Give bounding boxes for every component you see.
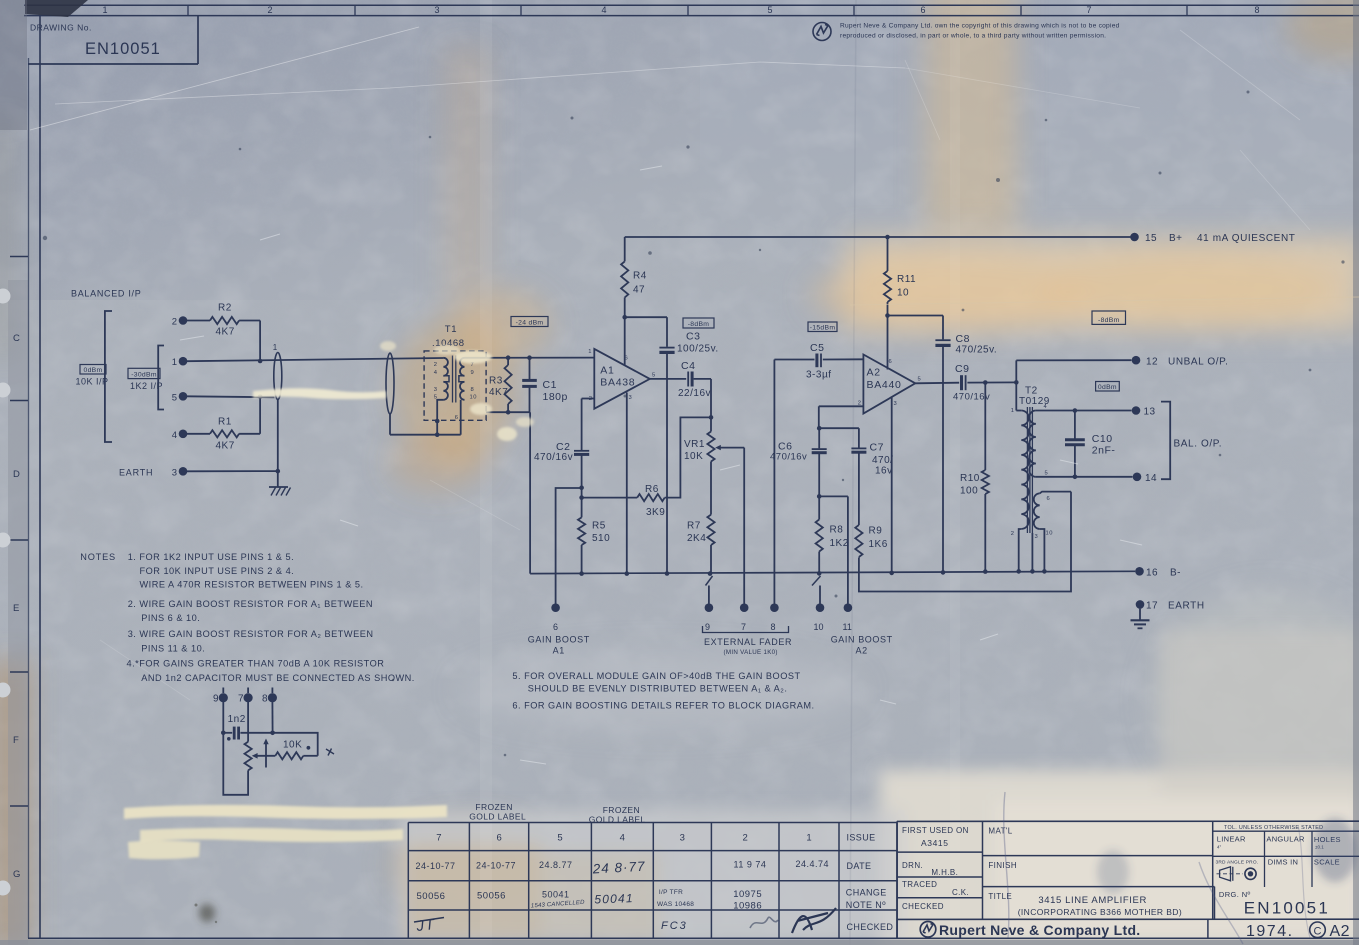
svg-text:(INCORPORATING B366 MOTHER: (INCORPORATING B366 MOTHER BD) xyxy=(1018,907,1182,917)
svg-text:1n2: 1n2 xyxy=(228,714,246,725)
svg-text:470/: 470/ xyxy=(872,455,893,466)
svg-text:50041: 50041 xyxy=(594,891,634,906)
svg-text:CHECKED: CHECKED xyxy=(847,922,894,932)
svg-text:0dBm: 0dBm xyxy=(84,367,103,374)
svg-text:EARTH: EARTH xyxy=(1168,601,1205,612)
svg-text:R10: R10 xyxy=(960,473,980,484)
svg-text:Rupert Neve & Company Ltd. own: Rupert Neve & Company Ltd. own the copyr… xyxy=(840,23,1120,30)
svg-text:50056: 50056 xyxy=(417,891,446,902)
svg-text:1. FOR 1K2 INPUT USE PINS 1 &: 1. FOR 1K2 INPUT USE PINS 1 & 5. xyxy=(128,552,294,562)
svg-text:8: 8 xyxy=(771,622,776,632)
svg-text:FINISH: FINISH xyxy=(988,861,1017,870)
svg-text:T2: T2 xyxy=(1025,386,1038,397)
svg-text:24.4.74: 24.4.74 xyxy=(796,859,830,869)
svg-text:R6: R6 xyxy=(645,484,659,495)
svg-text:8: 8 xyxy=(1254,5,1259,15)
svg-text:470/16v: 470/16v xyxy=(534,452,573,463)
svg-text:A1: A1 xyxy=(600,365,614,377)
svg-text:510: 510 xyxy=(592,533,610,544)
svg-text:-8dBm: -8dBm xyxy=(688,321,710,328)
svg-text:10K: 10K xyxy=(684,451,703,462)
svg-text:6: 6 xyxy=(496,833,501,844)
svg-text:7: 7 xyxy=(436,833,441,844)
svg-text:DIMS IN: DIMS IN xyxy=(1268,858,1298,867)
svg-text:2. WIRE GAIN BOOST RESISTOR FO: 2. WIRE GAIN BOOST RESISTOR FOR A₁ BETWE… xyxy=(128,599,373,609)
svg-text:GOLD LABEL: GOLD LABEL xyxy=(469,812,526,822)
svg-text:6: 6 xyxy=(553,622,558,632)
svg-text:B+: B+ xyxy=(1169,233,1183,244)
svg-text:5: 5 xyxy=(557,833,562,844)
svg-text:3RD ANGLE PRO.: 3RD ANGLE PRO. xyxy=(1216,860,1259,866)
svg-text:BALANCED I/P: BALANCED I/P xyxy=(71,289,141,299)
svg-text:BA438: BA438 xyxy=(600,377,635,389)
svg-text:100: 100 xyxy=(960,486,978,497)
svg-text:F: F xyxy=(13,735,19,746)
svg-text:6: 6 xyxy=(920,5,925,15)
svg-text:10: 10 xyxy=(470,395,477,401)
svg-text:10986: 10986 xyxy=(733,900,762,911)
svg-text:FIRST USED ON: FIRST USED ON xyxy=(902,826,969,835)
svg-text:1K2: 1K2 xyxy=(830,538,849,549)
svg-text:1: 1 xyxy=(1011,408,1014,414)
svg-text:NOTE Nº: NOTE Nº xyxy=(846,900,886,910)
svg-text:GOLD LABEL: GOLD LABEL xyxy=(589,815,646,825)
svg-text:(MIN VALUE 1K0): (MIN VALUE 1K0) xyxy=(724,649,778,656)
svg-text:9: 9 xyxy=(471,370,475,376)
svg-text:9: 9 xyxy=(705,622,710,632)
svg-text:14: 14 xyxy=(1145,473,1157,484)
svg-text:FROZEN: FROZEN xyxy=(603,805,640,815)
svg-text:2: 2 xyxy=(1011,531,1014,537)
svg-text:7: 7 xyxy=(238,694,244,705)
svg-text:4K7: 4K7 xyxy=(216,441,235,452)
svg-text:470/25v.: 470/25v. xyxy=(956,345,998,356)
svg-text:R7: R7 xyxy=(687,521,701,532)
svg-text:2: 2 xyxy=(267,5,272,15)
svg-text:R5: R5 xyxy=(592,521,606,532)
svg-text:PINS 6 & 10.: PINS 6 & 10. xyxy=(141,613,200,623)
svg-text:C: C xyxy=(13,333,20,344)
svg-text:2: 2 xyxy=(743,833,748,844)
svg-text:-8dBm: -8dBm xyxy=(1098,317,1120,324)
svg-text:10K: 10K xyxy=(283,740,302,751)
svg-text:5: 5 xyxy=(918,377,922,383)
svg-text:R8: R8 xyxy=(830,525,844,536)
svg-text:10: 10 xyxy=(814,622,824,632)
svg-text:2nF-: 2nF- xyxy=(1092,445,1116,457)
svg-text:FROZEN: FROZEN xyxy=(475,802,512,812)
svg-text:DRAWING No.: DRAWING No. xyxy=(30,23,92,33)
svg-text:2: 2 xyxy=(172,317,177,328)
svg-text:C1: C1 xyxy=(543,379,557,391)
svg-text:6: 6 xyxy=(455,415,458,421)
svg-text:C3: C3 xyxy=(686,331,700,343)
svg-text:9: 9 xyxy=(213,694,219,705)
svg-text:24-10-77: 24-10-77 xyxy=(476,861,516,871)
svg-text:Rupert Neve & Company Ltd.: Rupert Neve & Company Ltd. xyxy=(939,922,1141,938)
svg-text:WAS 10468: WAS 10468 xyxy=(657,901,694,908)
svg-text:C10: C10 xyxy=(1092,433,1113,445)
svg-text:C9: C9 xyxy=(955,363,969,375)
svg-text:10K I/P: 10K I/P xyxy=(76,377,109,387)
svg-text:15: 15 xyxy=(1145,233,1157,244)
svg-text:C.K.: C.K. xyxy=(952,888,969,897)
svg-text:1: 1 xyxy=(273,343,278,352)
svg-text:41 mA QUIESCENT: 41 mA QUIESCENT xyxy=(1197,233,1295,244)
svg-text:24-10-77: 24-10-77 xyxy=(416,861,456,871)
svg-text:T1: T1 xyxy=(445,324,457,335)
svg-text:4.*FOR GAINS GREATER THAN 70dB: 4.*FOR GAINS GREATER THAN 70dB A 10K RES… xyxy=(127,659,385,669)
svg-text:10975: 10975 xyxy=(733,889,762,900)
svg-text:WIRE A 470R RESISTOR BETWEEN P: WIRE A 470R RESISTOR BETWEEN PINS 1 & 5. xyxy=(140,579,364,589)
svg-text:1K2 I/P: 1K2 I/P xyxy=(130,381,163,391)
svg-text:E: E xyxy=(13,603,19,614)
svg-text:3: 3 xyxy=(172,467,177,478)
svg-text:24.8.77: 24.8.77 xyxy=(539,860,573,870)
svg-text:C5: C5 xyxy=(810,342,824,354)
svg-text:7: 7 xyxy=(741,622,746,632)
svg-text:4: 4 xyxy=(620,833,625,844)
svg-text:5: 5 xyxy=(172,392,177,403)
svg-text:FOR 10K INPUT USE PINS 2 & 4.: FOR 10K INPUT USE PINS 2 & 4. xyxy=(140,566,295,576)
svg-text:reproduced or disclosed, in pa: reproduced or disclosed, in part or whol… xyxy=(840,33,1106,40)
svg-text:B-: B- xyxy=(1170,568,1181,579)
svg-text:EN10051: EN10051 xyxy=(85,40,161,58)
svg-text:180p: 180p xyxy=(543,391,568,403)
svg-text:3K9: 3K9 xyxy=(646,507,665,518)
svg-text:100/25v.: 100/25v. xyxy=(677,344,719,355)
svg-text:1: 1 xyxy=(102,5,107,15)
svg-text:GAIN BOOST: GAIN BOOST xyxy=(528,635,590,645)
svg-text:3: 3 xyxy=(629,395,633,401)
svg-text:C: C xyxy=(1314,925,1322,937)
svg-text:0dBm: 0dBm xyxy=(1098,384,1117,391)
svg-text:A2: A2 xyxy=(856,646,868,656)
svg-text:5: 5 xyxy=(767,5,772,15)
svg-text:-30dBm: -30dBm xyxy=(131,371,157,378)
svg-text:R11: R11 xyxy=(897,274,916,285)
svg-text:4K7: 4K7 xyxy=(216,327,235,338)
svg-text:EXTERNAL FADER: EXTERNAL FADER xyxy=(704,637,792,647)
svg-text:CHECKED: CHECKED xyxy=(902,902,944,911)
svg-text:R9: R9 xyxy=(869,526,883,537)
svg-text:10: 10 xyxy=(1046,531,1053,537)
svg-text:2: 2 xyxy=(434,362,437,368)
svg-text:3: 3 xyxy=(894,401,898,407)
svg-text:17: 17 xyxy=(1146,601,1158,612)
svg-text:16v: 16v xyxy=(875,466,893,477)
svg-text:1: 1 xyxy=(588,349,591,355)
svg-text:I/P TFR: I/P TFR xyxy=(659,889,683,896)
svg-text:7: 7 xyxy=(1086,5,1091,15)
svg-text:16: 16 xyxy=(1146,568,1158,579)
svg-text:UNBAL O/P.: UNBAL O/P. xyxy=(1168,357,1228,368)
svg-text:SHOULD BE EVENLY DISTRIBUTED: SHOULD BE EVENLY DISTRIBUTED BETWEEN A₁ … xyxy=(528,684,788,694)
svg-text:5: 5 xyxy=(652,373,656,379)
svg-text:D: D xyxy=(13,469,20,480)
svg-text:11: 11 xyxy=(843,622,852,632)
svg-text:LINEAR: LINEAR xyxy=(1217,835,1246,844)
svg-text:MAT'L: MAT'L xyxy=(988,827,1012,836)
svg-text:4: 4 xyxy=(1044,404,1048,410)
svg-text:50041: 50041 xyxy=(542,890,570,900)
svg-text:-15dBm: -15dBm xyxy=(810,324,836,331)
svg-text:6: 6 xyxy=(1047,496,1051,502)
svg-text:24 8·77: 24 8·77 xyxy=(591,859,646,877)
svg-text:4K7: 4K7 xyxy=(489,387,508,398)
svg-text:TOL. UNLESS OTHERWISE STATED: TOL. UNLESS OTHERWISE STATED xyxy=(1224,825,1323,831)
svg-text:1974.: 1974. xyxy=(1246,923,1294,940)
svg-text:47: 47 xyxy=(633,285,645,296)
svg-text:R2: R2 xyxy=(218,303,232,314)
svg-text:ISSUE: ISSUE xyxy=(847,833,876,843)
svg-text:CHANGE: CHANGE xyxy=(846,888,887,898)
svg-text:R3: R3 xyxy=(489,376,503,387)
svg-text:4: 4 xyxy=(172,430,177,441)
svg-text:5. FOR OVERALL MODULE GAIN O: 5. FOR OVERALL MODULE GAIN OF>40dB THE G… xyxy=(512,671,800,681)
svg-text:8: 8 xyxy=(471,387,475,393)
svg-text:6. FOR GAIN BOOSTING DETAILS: 6. FOR GAIN BOOSTING DETAILS REFER TO BL… xyxy=(512,701,814,711)
svg-text:VR1: VR1 xyxy=(684,439,705,450)
svg-text:TRACED: TRACED xyxy=(902,880,937,889)
svg-text:AND 1n2 CAPACITOR MUST BE CONN: AND 1n2 CAPACITOR MUST BE CONNECTED AS S… xyxy=(141,673,415,683)
svg-text:5: 5 xyxy=(1045,471,1049,477)
svg-text:8: 8 xyxy=(262,694,268,705)
svg-text:A3415: A3415 xyxy=(921,838,949,848)
svg-text:PINS 11 & 10.: PINS 11 & 10. xyxy=(141,643,205,653)
svg-text:3: 3 xyxy=(680,833,685,844)
svg-text:1K6: 1K6 xyxy=(869,539,888,550)
svg-text:A1: A1 xyxy=(553,646,565,656)
svg-text:1: 1 xyxy=(172,357,177,368)
svg-text:BA440: BA440 xyxy=(867,379,902,391)
svg-text:M.H.B.: M.H.B. xyxy=(931,868,958,877)
svg-text:3415 LINE AMPLIFIER: 3415 LINE AMPLIFIER xyxy=(1038,895,1147,906)
svg-text:4°: 4° xyxy=(1217,845,1222,850)
svg-text:G: G xyxy=(13,869,20,880)
svg-text:6: 6 xyxy=(889,359,893,365)
svg-text:22/16v: 22/16v xyxy=(678,388,711,399)
svg-text:-24 dBm: -24 dBm xyxy=(516,319,544,326)
svg-text:12: 12 xyxy=(1146,357,1158,368)
svg-text:50056: 50056 xyxy=(477,891,506,902)
svg-text:BAL. O/P.: BAL. O/P. xyxy=(1174,439,1223,450)
svg-text:R1: R1 xyxy=(218,417,232,428)
svg-text:13: 13 xyxy=(1144,407,1156,418)
svg-text:FC3: FC3 xyxy=(661,920,688,932)
svg-text:A2: A2 xyxy=(1330,923,1351,940)
svg-text:A2: A2 xyxy=(867,367,881,379)
svg-text:3: 3 xyxy=(434,5,439,15)
svg-text:3. WIRE GAIN BOOST RESISTOR FO: 3. WIRE GAIN BOOST RESISTOR FOR A₂ BETWE… xyxy=(128,629,374,639)
svg-text:2K4: 2K4 xyxy=(687,533,706,544)
svg-text:10: 10 xyxy=(897,288,909,299)
svg-text:11 9 74: 11 9 74 xyxy=(734,860,767,870)
svg-text:3: 3 xyxy=(1035,534,1039,540)
svg-text:4: 4 xyxy=(601,5,606,15)
svg-text:C7: C7 xyxy=(870,442,884,454)
svg-text:EN10051: EN10051 xyxy=(1244,899,1330,918)
svg-text:C4: C4 xyxy=(681,360,695,372)
svg-text:3: 3 xyxy=(434,387,437,393)
svg-text:470/16v: 470/16v xyxy=(770,452,807,463)
svg-text:C8: C8 xyxy=(956,333,970,345)
svg-text:DRN.: DRN. xyxy=(902,861,923,870)
svg-text:3-3µf: 3-3µf xyxy=(806,370,832,381)
svg-text:GAIN BOOST: GAIN BOOST xyxy=(831,635,893,645)
svg-text:NOTES: NOTES xyxy=(80,552,116,562)
svg-text:DATE: DATE xyxy=(847,861,872,871)
svg-text:EARTH: EARTH xyxy=(119,468,153,478)
svg-text:R4: R4 xyxy=(633,271,647,282)
svg-text:1: 1 xyxy=(806,833,811,844)
